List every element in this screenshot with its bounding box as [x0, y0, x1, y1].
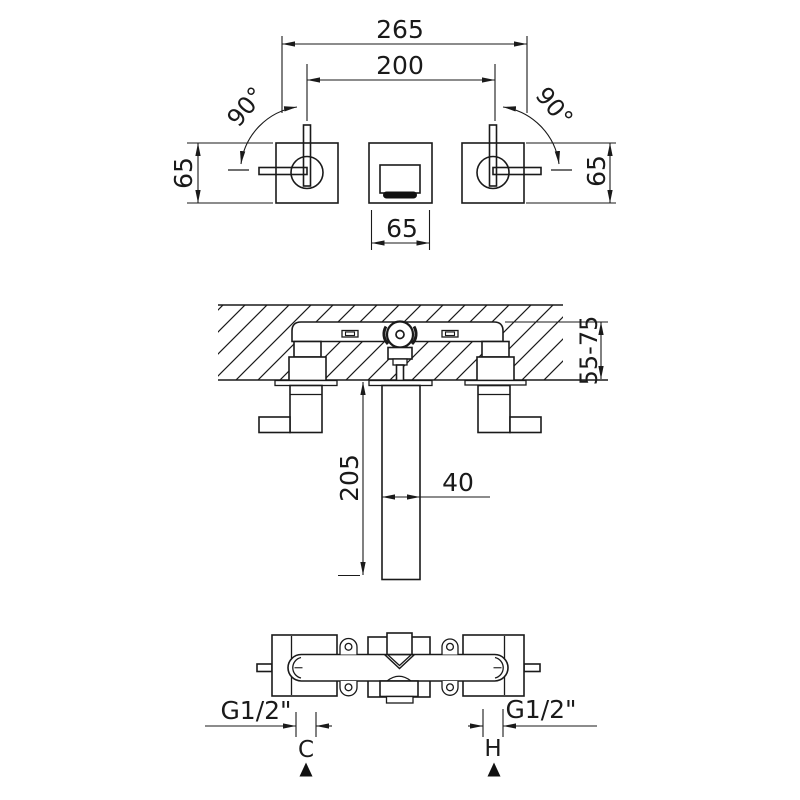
hot-triangle-icon — [488, 763, 501, 777]
dim-thread-left: G1/2" — [205, 696, 332, 737]
valve-body-right — [477, 357, 514, 381]
lever-pin-right — [524, 664, 540, 672]
front-view: 265 200 90° 90° — [169, 15, 616, 250]
spout-mount-block — [388, 348, 412, 360]
lug-top-left — [340, 639, 357, 655]
spout-stem — [397, 365, 404, 381]
dim-plate-height-left: 65 — [169, 143, 273, 203]
dim-spout-drop: 205 — [335, 382, 364, 576]
valve-neck-right — [482, 342, 509, 358]
spout-outlet — [383, 192, 417, 199]
dim-label-205: 205 — [335, 454, 364, 502]
handle-lever — [510, 417, 541, 433]
spout-port-top — [387, 633, 412, 655]
outlet-port-bottom — [380, 681, 418, 697]
handle-right-section — [478, 386, 541, 433]
dim-label-55-75: 55-75 — [575, 316, 603, 386]
technical-drawing-page: 265 200 90° 90° — [0, 0, 800, 800]
handle-left-front — [259, 125, 338, 203]
handle-body — [290, 386, 322, 433]
cold-label: C — [298, 737, 314, 763]
angle-label-right: 90° — [530, 82, 579, 133]
dim-label-40: 40 — [442, 468, 474, 497]
hot-label: H — [484, 736, 501, 762]
outlet-port-step — [387, 697, 414, 704]
lug-top-right — [442, 639, 458, 655]
handle-right-front — [462, 125, 541, 203]
angle-label-left: 90° — [221, 82, 270, 133]
valve-neck-left — [294, 342, 321, 358]
dim-label-65-right: 65 — [582, 155, 611, 187]
spout-section — [382, 386, 420, 580]
handle-left-section — [259, 386, 322, 433]
spout-mount-step — [393, 359, 407, 365]
dim-label-65-left: 65 — [169, 157, 198, 189]
dim-spout-plate-width: 65 — [372, 210, 430, 250]
lug-bottom-right — [442, 681, 458, 695]
dim-plate-height-right: 65 — [526, 143, 616, 203]
faucet-installation-drawing: 265 200 90° 90° — [0, 0, 800, 800]
lever-pin-left — [257, 664, 272, 672]
handle-lever — [259, 417, 290, 433]
section-view: 55-75 205 40 — [218, 305, 608, 580]
valve-body-left — [289, 357, 326, 381]
dim-handle-centers: 200 — [307, 51, 495, 121]
mixer-cartridge — [387, 322, 413, 348]
cold-indicator: C — [298, 737, 314, 777]
spout-front — [369, 143, 432, 203]
plan-view: G1/2" G1/2" C H — [205, 633, 597, 777]
thread-label-right: G1/2" — [505, 695, 576, 724]
dim-thread-right: G1/2" — [468, 695, 597, 737]
lug-bottom-left — [340, 681, 357, 696]
dim-label-200: 200 — [376, 51, 424, 80]
handle-body — [478, 386, 510, 433]
thread-label-left: G1/2" — [220, 696, 291, 725]
cold-triangle-icon — [300, 763, 313, 777]
dim-label-65-spout: 65 — [386, 214, 418, 243]
dim-label-265: 265 — [376, 15, 424, 44]
hot-indicator: H — [484, 736, 501, 777]
flange-right — [465, 381, 526, 386]
